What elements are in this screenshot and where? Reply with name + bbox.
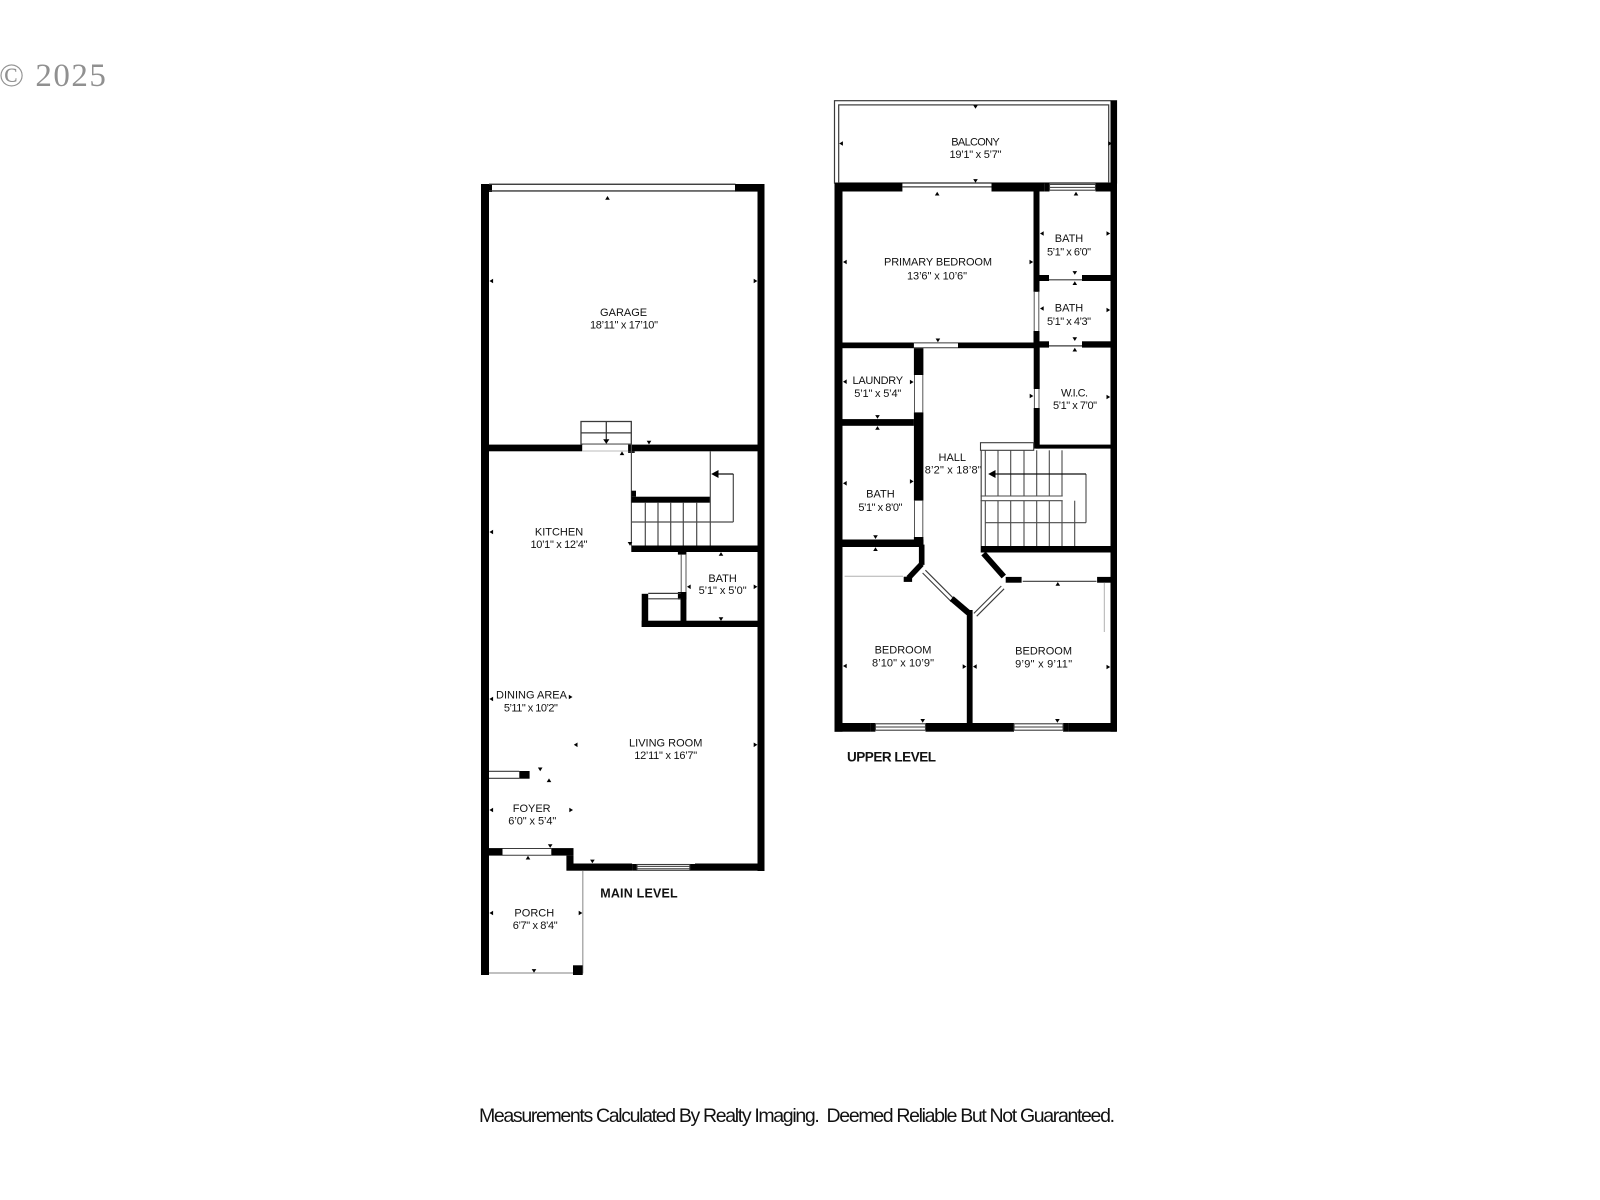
svg-text:5’1" x 6’0": 5’1" x 6’0" [1047,247,1091,259]
svg-text:5’1" x 7’0": 5’1" x 7’0" [1053,400,1097,412]
svg-text:5’1" x 4’3": 5’1" x 4’3" [1047,316,1091,328]
svg-text:PRIMARY BEDROOM: PRIMARY BEDROOM [884,257,992,269]
svg-text:5’11" x 10’2": 5’11" x 10’2" [504,702,558,714]
svg-text:6’0" x 5’4": 6’0" x 5’4" [508,815,556,827]
svg-text:12’11" x 16’7": 12’11" x 16’7" [634,750,697,762]
svg-text:BATH: BATH [708,573,737,585]
svg-text:MAIN LEVEL: MAIN LEVEL [600,887,678,901]
svg-text:DINING AREA: DINING AREA [496,690,568,702]
svg-text:8’10" x 10’9": 8’10" x 10’9" [872,657,934,669]
svg-text:18’11" x 17’10": 18’11" x 17’10" [590,320,658,332]
svg-text:6’7" x 8’4": 6’7" x 8’4" [513,920,558,932]
svg-text:LIVING ROOM: LIVING ROOM [629,737,702,749]
svg-text:BEDROOM: BEDROOM [875,645,932,657]
svg-text:UPPER LEVEL: UPPER LEVEL [847,750,936,765]
svg-text:FOYER: FOYER [513,803,551,815]
svg-text:BATH: BATH [1055,233,1084,245]
svg-text:PORCH: PORCH [514,908,554,920]
svg-text:BALCONY: BALCONY [951,137,1000,149]
svg-text:5’1" x 5’0": 5’1" x 5’0" [699,585,747,597]
svg-text:W.I.C.: W.I.C. [1061,388,1088,400]
svg-text:© 2025: © 2025 [0,58,107,94]
svg-text:19’1" x 5’7": 19’1" x 5’7" [950,149,1002,161]
svg-text:10’1" x 12’4": 10’1" x 12’4" [531,539,588,551]
svg-text:LAUNDRY: LAUNDRY [853,375,904,387]
svg-text:GARAGE: GARAGE [600,307,647,319]
svg-text:BEDROOM: BEDROOM [1015,646,1072,658]
svg-text:8’2" x 18’8": 8’2" x 18’8" [925,465,982,477]
svg-text:Measurements Calculated By Rea: Measurements Calculated By Realty Imagin… [479,1105,1115,1127]
svg-text:13’6" x 10’6": 13’6" x 10’6" [907,271,967,283]
svg-text:5’1" x 8’0": 5’1" x 8’0" [858,502,902,514]
svg-text:BATH: BATH [866,489,895,501]
svg-text:9’9" x 9’11": 9’9" x 9’11" [1015,658,1072,670]
svg-text:HALL: HALL [939,452,967,464]
svg-text:5’1" x 5’4": 5’1" x 5’4" [854,388,901,400]
svg-text:KITCHEN: KITCHEN [535,527,583,539]
svg-text:BATH: BATH [1055,303,1084,315]
